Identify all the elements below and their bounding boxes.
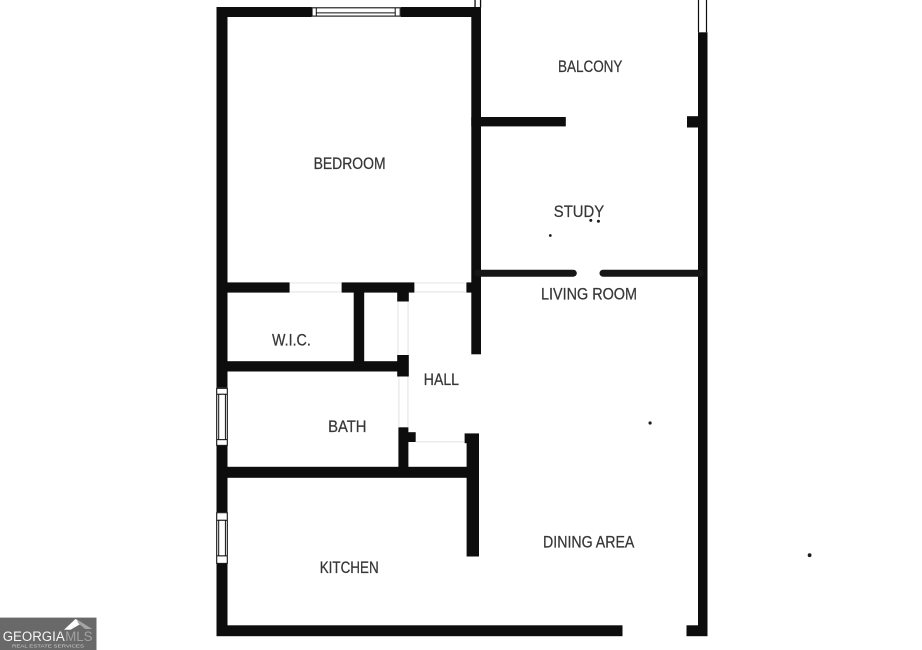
svg-text:W.I.C.: W.I.C. <box>272 331 311 349</box>
svg-text:STUDY: STUDY <box>554 203 604 221</box>
svg-text:BEDROOM: BEDROOM <box>314 155 386 173</box>
svg-text:KITCHEN: KITCHEN <box>320 559 379 577</box>
svg-text:REAL ESTATE SERVICES: REAL ESTATE SERVICES <box>12 643 84 648</box>
svg-text:DINING AREA: DINING AREA <box>543 534 634 552</box>
svg-text:BATH: BATH <box>328 418 366 436</box>
svg-text:BALCONY: BALCONY <box>558 58 623 76</box>
svg-text:LIVING ROOM: LIVING ROOM <box>541 286 637 304</box>
svg-text:HALL: HALL <box>424 371 459 389</box>
